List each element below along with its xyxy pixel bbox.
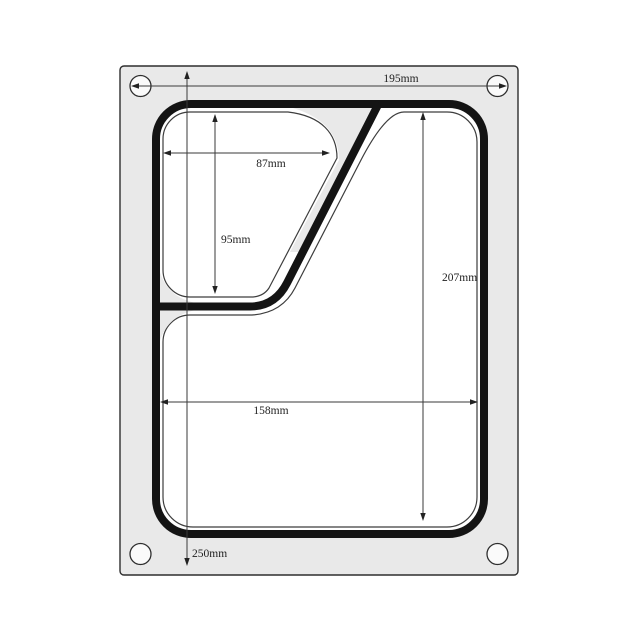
dim-label-plate-height: 250mm bbox=[192, 548, 227, 560]
dim-label-plate-width: 195mm bbox=[383, 73, 418, 85]
dim-label-large-comp-width: 158mm bbox=[253, 405, 288, 417]
screw-hole-bottom-left bbox=[130, 544, 151, 565]
sealing-matrix-drawing: 195mm 250mm 87mm 95mm 207mm 158mm bbox=[0, 0, 640, 640]
dim-label-small-comp-width: 87mm bbox=[256, 158, 285, 170]
dim-label-large-comp-height: 207mm bbox=[442, 272, 477, 284]
diagram-canvas: 195mm 250mm 87mm 95mm 207mm 158mm bbox=[0, 0, 640, 640]
screw-hole-bottom-right bbox=[487, 544, 508, 565]
dim-label-small-comp-height: 95mm bbox=[221, 234, 250, 246]
